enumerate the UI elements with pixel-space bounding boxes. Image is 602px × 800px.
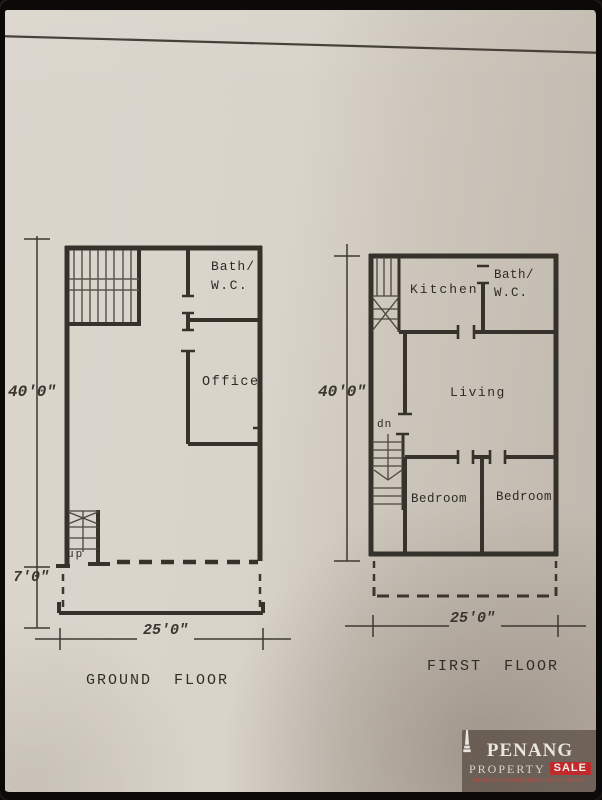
watermark-logo: PENANG PROPERTY SALE PENANG'S #1 PROPERT… bbox=[462, 730, 598, 795]
ff-height-dimension: 40'0" bbox=[318, 383, 366, 401]
watermark-sale-badge: SALE bbox=[550, 762, 591, 775]
clock-tower-icon bbox=[462, 730, 472, 754]
gf-title: GROUND FLOOR bbox=[86, 672, 229, 689]
ff-bedroom-left-label: Bedroom bbox=[411, 492, 467, 506]
ff-width-dimension: 25'0" bbox=[450, 610, 495, 627]
page-top-line bbox=[0, 36, 602, 53]
gf-stairs-up-label: up bbox=[67, 549, 84, 561]
gf-bath-label-line1: Bath/ bbox=[211, 259, 255, 274]
ff-title: FIRST FLOOR bbox=[427, 658, 559, 675]
watermark-row1: PENANG bbox=[487, 741, 573, 760]
stair-treads bbox=[68, 250, 403, 552]
porch-dashed-sides bbox=[63, 561, 556, 608]
ff-wc-label-line2: W.C. bbox=[494, 286, 528, 300]
floor-plan-photo: Bath/ W.C. Office up 40'0" 7'0" 25'0" GR… bbox=[0, 0, 602, 800]
watermark-property-text: PROPERTY bbox=[469, 763, 546, 775]
gf-porch-front-line bbox=[59, 602, 263, 613]
watermark-brand-text: PENANG bbox=[487, 741, 573, 760]
ff-bath-label-line1: Bath/ bbox=[494, 268, 534, 282]
watermark-tagline: PENANG'S #1 PROPERTY MARKETPLACE bbox=[474, 778, 587, 784]
ff-kitchen-label: Kitchen bbox=[410, 282, 479, 297]
ff-living-label: Living bbox=[450, 385, 506, 400]
gf-width-dimension: 25'0" bbox=[143, 622, 188, 639]
ff-stairs-down-label: dn bbox=[377, 419, 392, 431]
stair-rails bbox=[69, 279, 139, 290]
watermark-row2: PROPERTY SALE bbox=[469, 762, 591, 775]
gf-office-label: Office bbox=[202, 375, 260, 390]
gf-height-dimension: 40'0" bbox=[8, 383, 56, 401]
gf-wc-label-line2: W.C. bbox=[211, 278, 248, 293]
gf-porch-dimension: 7'0" bbox=[13, 569, 49, 586]
ff-bedroom-right-label: Bedroom bbox=[496, 490, 552, 504]
